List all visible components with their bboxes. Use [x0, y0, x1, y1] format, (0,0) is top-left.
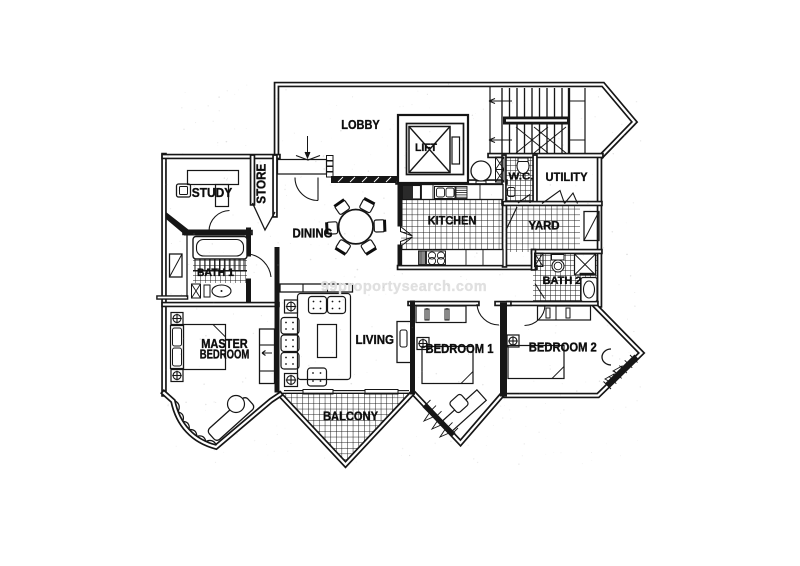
- svg-text:STUDY: STUDY: [192, 186, 233, 200]
- svg-text:YARD: YARD: [529, 219, 560, 233]
- svg-text:BATH 1: BATH 1: [197, 267, 234, 279]
- svg-text:DINING: DINING: [293, 227, 333, 241]
- svg-text:99proportysearch.com: 99proportysearch.com: [321, 279, 487, 295]
- svg-text:LIVING: LIVING: [356, 333, 395, 347]
- svg-text:W.C.: W.C.: [509, 171, 534, 183]
- svg-text:UTILITY: UTILITY: [546, 170, 588, 184]
- svg-text:KITCHEN: KITCHEN: [428, 214, 477, 228]
- svg-text:LOBBY: LOBBY: [341, 117, 380, 132]
- svg-text:STORE: STORE: [255, 164, 269, 204]
- svg-text:BEDROOM 1: BEDROOM 1: [426, 342, 494, 356]
- svg-text:LIFT: LIFT: [415, 142, 437, 154]
- svg-text:BALCONY: BALCONY: [323, 410, 379, 424]
- svg-text:BEDROOM 2: BEDROOM 2: [529, 341, 597, 355]
- svg-text:BATH 2: BATH 2: [543, 275, 582, 287]
- svg-text:BEDROOM: BEDROOM: [200, 348, 250, 362]
